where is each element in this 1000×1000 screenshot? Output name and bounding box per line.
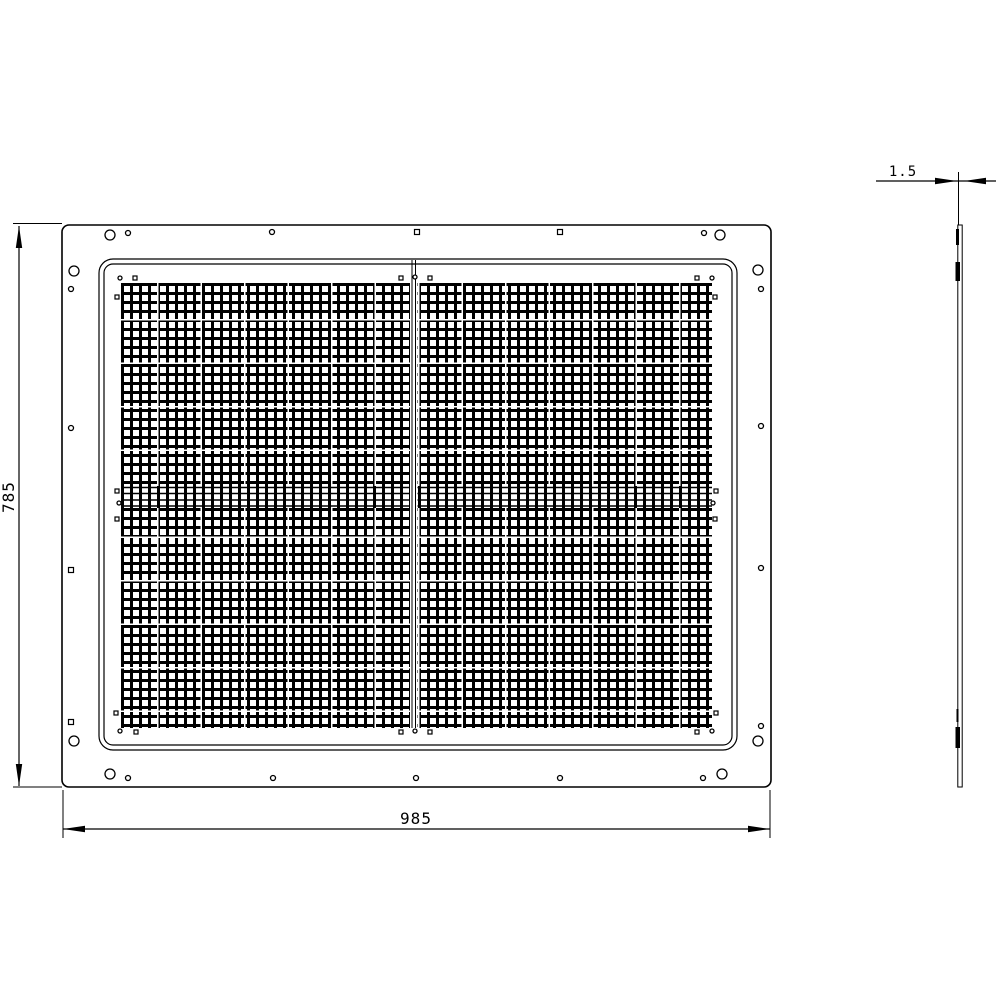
- square-hole: [695, 730, 699, 734]
- round-hole: [759, 424, 764, 429]
- round-hole: [118, 729, 122, 733]
- width-dimension-label: 985: [400, 809, 432, 828]
- square-hole: [115, 517, 119, 521]
- round-hole: [126, 231, 131, 236]
- square-hole: [133, 276, 137, 280]
- round-hole: [753, 265, 763, 275]
- round-hole: [753, 736, 763, 746]
- round-hole: [710, 729, 714, 733]
- height-dimension-label: 785: [0, 481, 18, 513]
- square-hole: [428, 730, 432, 734]
- square-hole: [415, 230, 420, 235]
- round-hole: [701, 776, 706, 781]
- square-hole: [713, 517, 717, 521]
- side-tab: [956, 229, 959, 245]
- side-plate-profile: [958, 225, 962, 787]
- round-hole: [414, 776, 419, 781]
- round-hole: [715, 230, 725, 240]
- round-hole: [271, 776, 276, 781]
- round-hole: [710, 276, 714, 280]
- round-hole: [69, 287, 74, 292]
- round-hole: [413, 729, 417, 733]
- front-view: [62, 225, 771, 787]
- square-hole: [558, 230, 563, 235]
- round-hole: [759, 287, 764, 292]
- drawing-sheet: 785 985 1.5: [0, 0, 1000, 1000]
- square-hole: [69, 720, 74, 725]
- round-hole: [126, 776, 131, 781]
- square-hole: [714, 489, 718, 493]
- round-hole: [413, 275, 417, 279]
- square-hole: [695, 276, 699, 280]
- round-hole: [105, 769, 115, 779]
- round-hole: [711, 501, 715, 505]
- side-tab: [956, 727, 961, 748]
- side-tab: [957, 709, 959, 722]
- square-hole: [399, 276, 403, 280]
- round-hole: [105, 230, 115, 240]
- seam-band: [410, 283, 418, 728]
- side-tab: [956, 262, 961, 281]
- square-hole: [428, 276, 432, 280]
- thickness-dimension-label: 1.5: [889, 164, 917, 180]
- square-hole: [714, 711, 718, 715]
- round-hole: [717, 769, 727, 779]
- round-hole: [69, 426, 74, 431]
- round-hole: [117, 501, 121, 505]
- round-hole: [270, 230, 275, 235]
- round-hole: [759, 724, 764, 729]
- square-hole: [134, 730, 138, 734]
- round-hole: [759, 566, 764, 571]
- square-hole: [115, 489, 119, 493]
- square-hole: [115, 295, 119, 299]
- round-hole: [118, 276, 122, 280]
- square-hole: [399, 730, 403, 734]
- technical-drawing: 785 985 1.5: [0, 0, 1000, 1000]
- round-hole: [69, 736, 79, 746]
- round-hole: [69, 266, 79, 276]
- square-hole: [713, 295, 717, 299]
- round-hole: [702, 231, 707, 236]
- mesh-center-seam: [410, 260, 418, 728]
- square-hole: [114, 711, 118, 715]
- round-hole: [558, 776, 563, 781]
- square-hole: [69, 568, 74, 573]
